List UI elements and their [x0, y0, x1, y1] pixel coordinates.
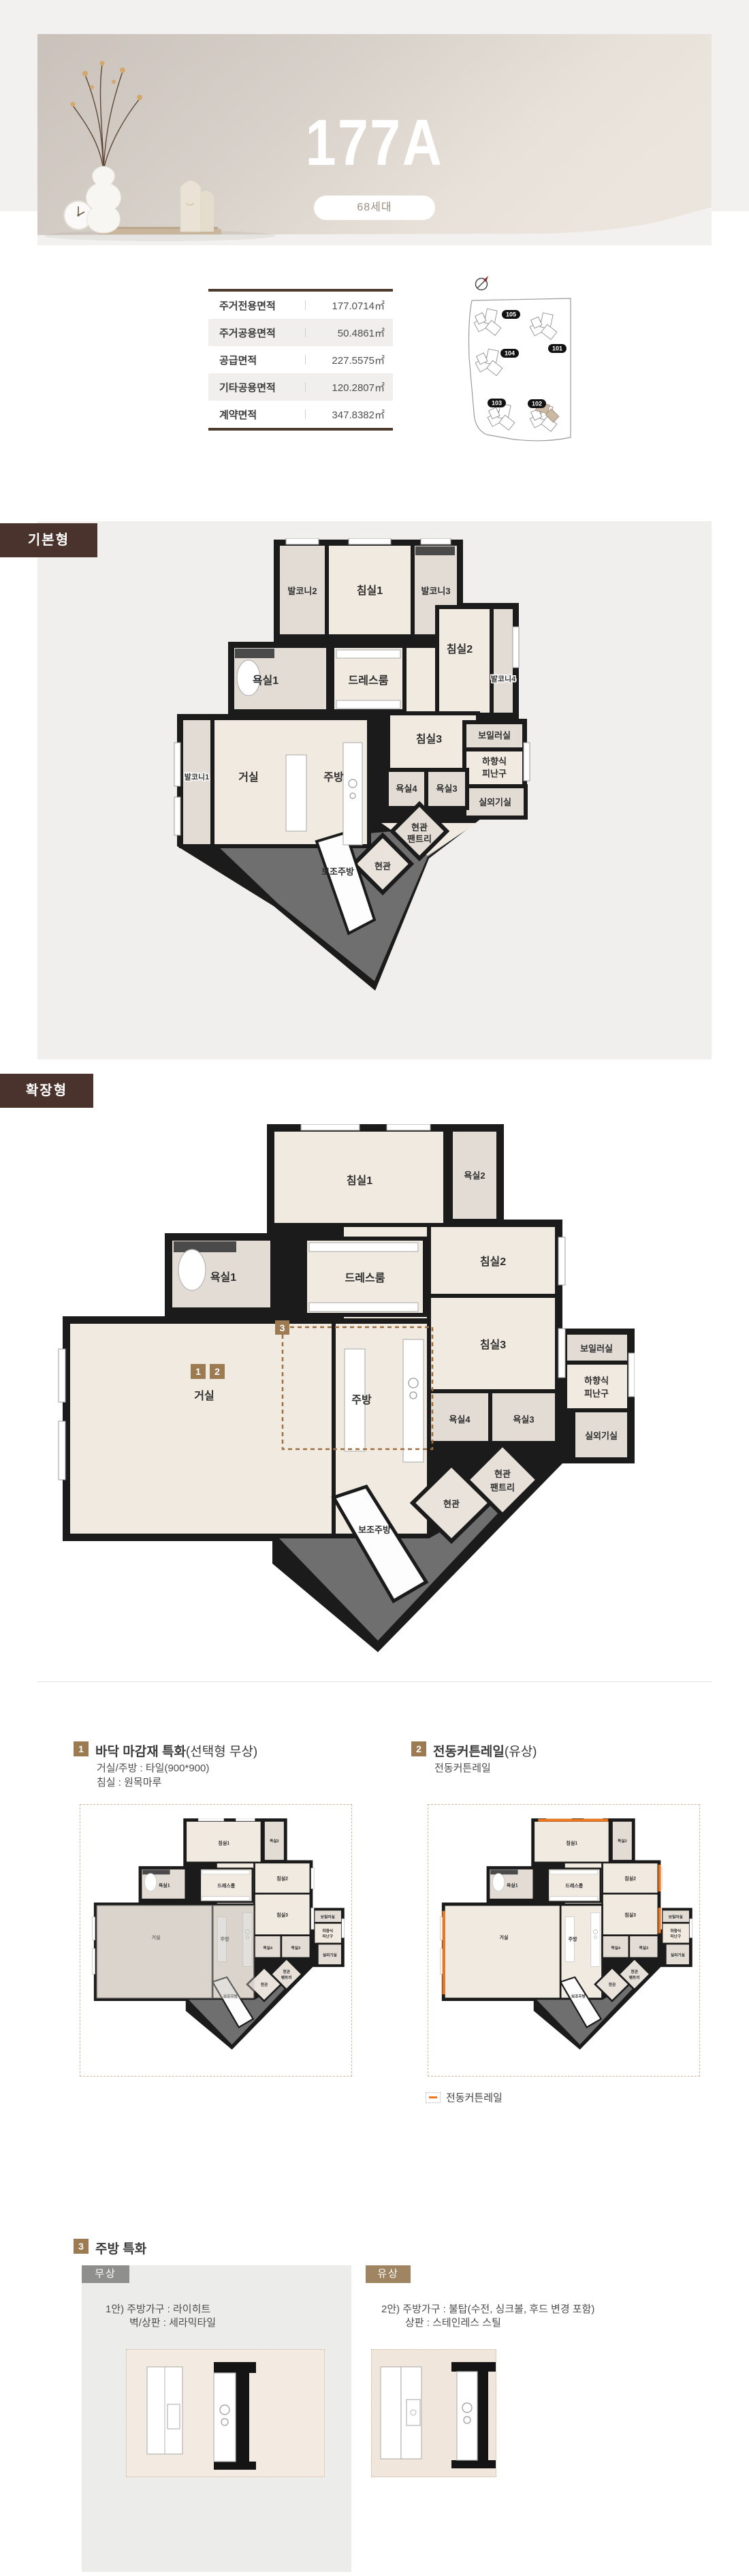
feature1-mini-plan: [87, 1818, 345, 2054]
svg-text:3: 3: [280, 1322, 285, 1333]
room-label-balcony1: 발코니1: [185, 772, 209, 781]
area-value: 347.8382㎡: [313, 407, 385, 422]
area-label: 주거전용면적: [219, 298, 296, 313]
building-badge-105: 105: [502, 310, 520, 319]
room-label-bath1: 욕실1: [253, 674, 278, 687]
feature2-line1: 전동커튼레일: [434, 1760, 491, 1775]
building-badge-102: 102: [528, 399, 546, 408]
extended-type-tag: 확장형: [0, 1074, 93, 1108]
room-label-pantry2: 팬트리: [407, 834, 432, 844]
basic-type-tag: 기본형: [0, 523, 97, 557]
svg-text:103: 103: [492, 400, 502, 407]
marker-1: 1: [191, 1364, 206, 1379]
room-label-living: 거실: [238, 771, 258, 783]
paid-line1: 2안) 주방가구 : 불탑(수전, 싱크볼, 후드 변경 포함): [381, 2301, 594, 2316]
area-label: 계약면적: [219, 407, 296, 422]
divider: [305, 382, 306, 392]
area-label: 주거공용면적: [219, 326, 296, 340]
tile-floor-highlight: [96, 1905, 254, 1999]
table-row: 계약면적 347.8382㎡: [208, 401, 393, 428]
unit-type-title: 177A: [91, 110, 658, 176]
divider: [305, 300, 306, 310]
area-label: 공급면적: [219, 353, 296, 367]
room-label-bed1: 침실1: [357, 584, 383, 597]
area-value: 177.0714㎡: [313, 298, 385, 313]
feature2-title: 전동커튼레일(유상): [433, 1741, 537, 1760]
divider: [305, 355, 306, 364]
feature3-title: 주방 특화: [95, 2239, 146, 2257]
room-label-balcony2: 발코니2: [287, 586, 317, 596]
divider: [305, 328, 306, 337]
units-count-badge: 68세대: [314, 196, 435, 220]
site-plan: 105 101 104 103 102: [463, 271, 654, 450]
room-label-escape2: 피난구: [482, 769, 507, 779]
room-label-bath4: 욕실4: [396, 783, 417, 794]
room-label-bath3: 욕실3: [436, 783, 457, 794]
table-row: 공급면적 227.5575㎡: [208, 346, 393, 373]
marker-3: 3: [275, 1320, 289, 1335]
svg-text:102: 102: [532, 401, 542, 407]
hero-photo: 177A 68세대: [37, 34, 712, 245]
svg-text:104: 104: [505, 350, 515, 357]
room-label-pantry1: 현관: [411, 822, 428, 833]
svg-text:2: 2: [214, 1366, 220, 1377]
feature1-plan-box: [80, 1804, 352, 2077]
feature1-header: 1 바닥 마감재 특화(선택형 무상): [74, 1741, 257, 1760]
feature2-number: 2: [411, 1741, 426, 1756]
feature2-header: 2 전동커튼레일(유상): [411, 1741, 537, 1760]
room-label-escape1: 하향식: [482, 756, 507, 766]
room-label-balcony3: 발코니3: [421, 586, 450, 596]
table-row: 주거공용면적 50.4861㎡: [208, 319, 393, 346]
area-label: 기타공용면적: [219, 380, 296, 394]
svg-text:105: 105: [506, 311, 516, 318]
feature1-line1: 거실/주방 : 타일(900*900): [97, 1760, 209, 1775]
building-badge-103: 103: [488, 399, 506, 407]
feature2-plan-box: [428, 1804, 700, 2077]
feature1-number: 1: [74, 1741, 89, 1756]
paid-badge: 유상: [366, 2265, 411, 2283]
feature3-number: 3: [74, 2239, 89, 2254]
area-value: 50.4861㎡: [313, 326, 385, 340]
floorplan-page: 177A 68세대 주거전용면적 177.0714㎡ 주거공용면적 50.486…: [0, 0, 749, 2576]
room-label-balcony4: 발코니4: [491, 674, 516, 683]
paid-line2: 상판 : 스테인레스 스틸: [405, 2315, 501, 2329]
room-label-entry: 현관: [374, 861, 391, 871]
feature1-line2: 침실 : 원목마루: [97, 1775, 161, 1789]
free-line2: 벽/상판 : 세라믹타일: [129, 2315, 216, 2329]
room-label-boiler: 보일러실: [478, 730, 511, 741]
free-line1: 1안) 주방가구 : 라이히트: [106, 2301, 210, 2316]
svg-text:101: 101: [552, 345, 562, 352]
room-label-ac: 실외기실: [479, 797, 511, 807]
feature3-header: 3 주방 특화: [74, 2239, 146, 2257]
room-label-kitchen: 주방: [323, 771, 344, 783]
rail-legend: 전동커튼레일: [426, 2090, 503, 2105]
room-label-subkitchen: 보조주방: [321, 867, 354, 877]
area-value: 227.5575㎡: [313, 353, 385, 367]
extended-floor-plan: 1 2 3: [48, 1124, 635, 1662]
feature1-title: 바닥 마감재 특화(선택형 무상): [95, 1741, 257, 1760]
feature2-mini-plan: [435, 1818, 692, 2054]
section-divider: [37, 1681, 712, 1682]
marker-2: 2: [210, 1364, 225, 1379]
basic-floor-plan: 발코니2 침실1 발코니3 침실2 발코니4 욕실1 드레스룸 침실3 보일러실…: [170, 538, 538, 996]
divider: [305, 409, 306, 419]
building-badge-101: 101: [548, 344, 567, 353]
building-badge-104: 104: [500, 349, 519, 358]
free-kitchen-diagram: [126, 2349, 325, 2477]
free-badge: 무상: [82, 2265, 129, 2283]
room-label-bed2: 침실2: [447, 642, 473, 655]
room-label-bed3: 침실3: [416, 732, 442, 745]
room-label-dress: 드레스룸: [349, 674, 389, 687]
curtain-rail-icon: [426, 2092, 441, 2103]
legend-label: 전동커튼레일: [446, 2090, 503, 2105]
table-row: 기타공용면적 120.2807㎡: [208, 373, 393, 401]
svg-text:1: 1: [195, 1366, 201, 1377]
table-row: 주거전용면적 177.0714㎡: [208, 292, 393, 319]
area-value: 120.2807㎡: [313, 380, 385, 394]
paid-kitchen-diagram: [371, 2349, 496, 2477]
area-table: 주거전용면적 177.0714㎡ 주거공용면적 50.4861㎡ 공급면적 22…: [208, 289, 393, 431]
compass-icon: [476, 276, 489, 290]
